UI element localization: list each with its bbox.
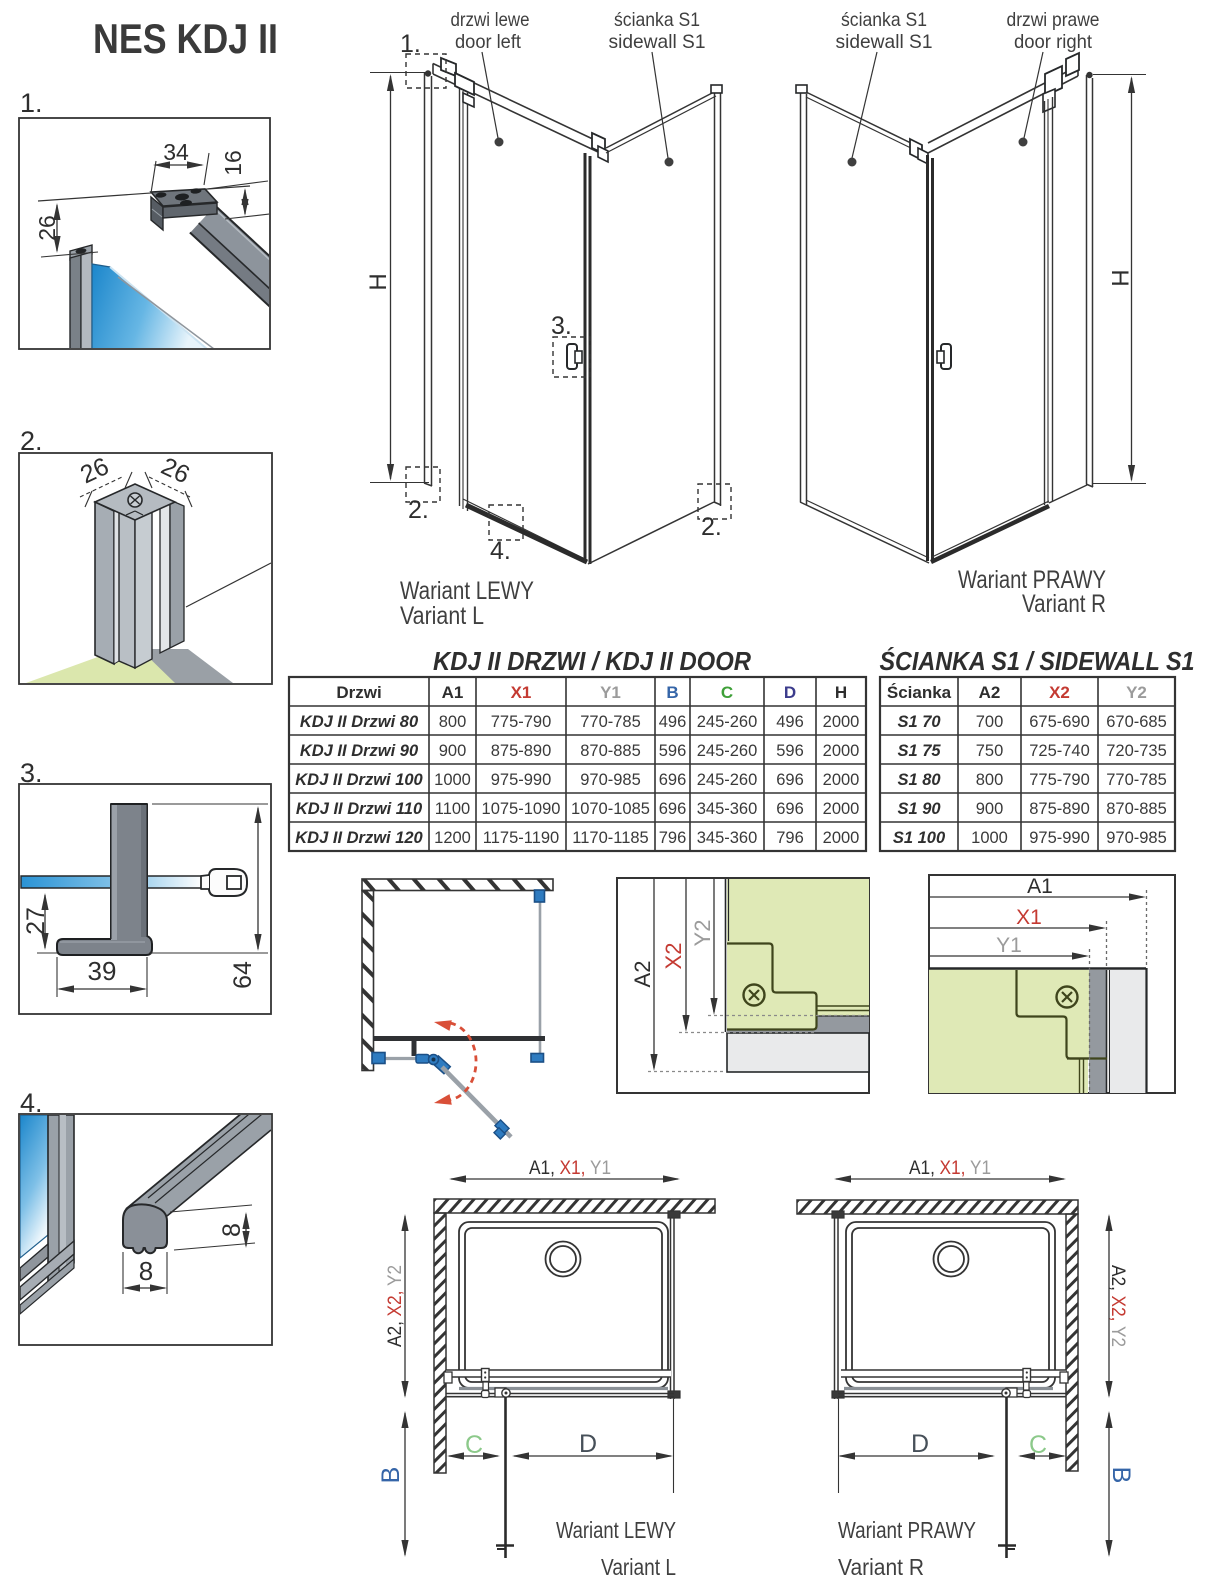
svg-text:870-885: 870-885 — [1106, 800, 1167, 818]
svg-text:Variant L: Variant L — [601, 1554, 676, 1580]
svg-text:X1,: X1, — [940, 1158, 966, 1179]
svg-text:Y2: Y2 — [690, 920, 715, 947]
svg-text:770-785: 770-785 — [580, 713, 641, 731]
svg-text:1200: 1200 — [434, 829, 471, 847]
svg-text:H: H — [835, 683, 847, 702]
svg-text:A1,: A1, — [529, 1158, 555, 1179]
svg-text:27: 27 — [22, 907, 50, 935]
svg-text:X2: X2 — [661, 943, 686, 970]
svg-text:KDJ II Drzwi 120: KDJ II Drzwi 120 — [295, 829, 423, 847]
svg-text:245-260: 245-260 — [697, 742, 758, 760]
svg-text:drzwi prawe: drzwi prawe — [1007, 9, 1100, 31]
svg-text:775-790: 775-790 — [491, 713, 552, 731]
svg-text:door left: door left — [455, 31, 522, 53]
svg-text:975-990: 975-990 — [491, 771, 552, 789]
svg-text:KDJ II Drzwi 110: KDJ II Drzwi 110 — [296, 800, 423, 818]
svg-text:3.: 3. — [551, 312, 572, 340]
svg-text:2000: 2000 — [823, 771, 860, 789]
svg-text:Variant L: Variant L — [400, 602, 484, 630]
svg-text:596: 596 — [776, 742, 804, 760]
svg-text:2.: 2. — [408, 496, 429, 524]
svg-text:NES KDJ II: NES KDJ II — [93, 15, 278, 62]
svg-text:8: 8 — [218, 1223, 246, 1237]
svg-text:X1: X1 — [1016, 906, 1042, 929]
svg-text:Drzwi: Drzwi — [336, 683, 381, 702]
svg-text:1.: 1. — [20, 88, 43, 118]
svg-text:2.: 2. — [20, 426, 43, 456]
svg-text:Y2: Y2 — [1126, 683, 1147, 702]
svg-text:sidewall S1: sidewall S1 — [609, 31, 706, 53]
svg-text:1000: 1000 — [434, 771, 471, 789]
svg-text:696: 696 — [776, 771, 804, 789]
svg-text:Y2: Y2 — [1107, 1326, 1128, 1347]
svg-text:D: D — [784, 683, 796, 702]
svg-text:1075-1090: 1075-1090 — [482, 800, 561, 818]
svg-text:X2,: X2, — [385, 1291, 406, 1317]
svg-text:Variant R: Variant R — [838, 1554, 924, 1580]
svg-text:696: 696 — [659, 800, 687, 818]
svg-text:A1: A1 — [442, 683, 464, 702]
svg-text:800: 800 — [976, 771, 1004, 789]
svg-text:696: 696 — [776, 800, 804, 818]
svg-text:Y2: Y2 — [385, 1265, 406, 1286]
svg-text:KDJ II Drzwi 80: KDJ II Drzwi 80 — [300, 713, 419, 731]
svg-text:1100: 1100 — [435, 800, 470, 818]
svg-text:1170-1185: 1170-1185 — [572, 829, 648, 847]
svg-text:B: B — [666, 683, 678, 702]
svg-text:Y1: Y1 — [970, 1158, 991, 1179]
svg-text:S1 90: S1 90 — [897, 800, 941, 818]
svg-text:A2,: A2, — [1107, 1265, 1128, 1291]
svg-text:Wariant LEWY: Wariant LEWY — [556, 1517, 676, 1543]
svg-text:KDJ II DRZWI / KDJ II DOOR: KDJ II DRZWI / KDJ II DOOR — [433, 646, 751, 676]
svg-text:970-985: 970-985 — [580, 771, 641, 789]
svg-text:39: 39 — [88, 956, 117, 986]
svg-text:34: 34 — [163, 139, 189, 165]
svg-text:64: 64 — [229, 961, 257, 989]
svg-text:A2: A2 — [630, 961, 655, 988]
svg-text:900: 900 — [439, 742, 467, 760]
svg-text:796: 796 — [659, 829, 687, 847]
svg-text:Y1: Y1 — [590, 1158, 611, 1179]
svg-text:675-690: 675-690 — [1029, 713, 1090, 731]
svg-text:B: B — [377, 1467, 405, 1484]
svg-text:Ścianka: Ścianka — [887, 683, 952, 702]
svg-text:4.: 4. — [490, 537, 511, 565]
svg-text:700: 700 — [976, 713, 1004, 731]
svg-text:S1 70: S1 70 — [897, 713, 941, 731]
svg-text:875-890: 875-890 — [1029, 800, 1090, 818]
svg-text:H: H — [365, 273, 392, 290]
svg-text:D: D — [911, 1430, 929, 1458]
svg-text:900: 900 — [976, 800, 1004, 818]
svg-text:X1,: X1, — [560, 1158, 586, 1179]
svg-text:ŚCIANKA S1 / SIDEWALL S1: ŚCIANKA S1 / SIDEWALL S1 — [880, 646, 1195, 676]
svg-text:2000: 2000 — [823, 800, 860, 818]
svg-text:875-890: 875-890 — [491, 742, 552, 760]
svg-text:1070-1085: 1070-1085 — [571, 800, 650, 818]
svg-text:Variant R: Variant R — [1022, 590, 1106, 618]
svg-text:725-740: 725-740 — [1029, 742, 1090, 760]
svg-text:KDJ II Drzwi 100: KDJ II Drzwi 100 — [295, 771, 423, 789]
svg-text:770-785: 770-785 — [1106, 771, 1167, 789]
svg-text:A1: A1 — [1027, 875, 1053, 898]
svg-text:Y1: Y1 — [996, 934, 1022, 957]
svg-text:2.: 2. — [701, 513, 722, 541]
svg-text:ścianka S1: ścianka S1 — [841, 9, 927, 31]
svg-text:2000: 2000 — [823, 713, 860, 731]
svg-text:X1: X1 — [511, 683, 532, 702]
svg-text:750: 750 — [976, 742, 1004, 760]
svg-text:696: 696 — [659, 771, 687, 789]
svg-text:596: 596 — [659, 742, 687, 760]
svg-text:H: H — [1106, 269, 1133, 286]
svg-text:970-985: 970-985 — [1106, 829, 1167, 847]
svg-text:B: B — [1107, 1467, 1135, 1484]
svg-text:KDJ II Drzwi 90: KDJ II Drzwi 90 — [300, 742, 419, 760]
svg-text:door right: door right — [1014, 31, 1093, 53]
svg-text:345-360: 345-360 — [697, 800, 758, 818]
svg-text:ścianka S1: ścianka S1 — [614, 9, 700, 31]
svg-text:C: C — [721, 683, 733, 702]
svg-text:720-735: 720-735 — [1106, 742, 1167, 760]
svg-text:8: 8 — [139, 1256, 153, 1286]
svg-text:A2: A2 — [979, 683, 1001, 702]
svg-text:Wariant LEWY: Wariant LEWY — [400, 577, 534, 605]
svg-text:Y1: Y1 — [600, 683, 621, 702]
svg-text:496: 496 — [659, 713, 687, 731]
svg-text:2000: 2000 — [823, 742, 860, 760]
svg-text:drzwi lewe: drzwi lewe — [451, 9, 530, 31]
svg-text:16: 16 — [220, 150, 246, 176]
svg-text:S1 100: S1 100 — [893, 829, 946, 847]
svg-text:670-685: 670-685 — [1106, 713, 1167, 731]
svg-text:D: D — [579, 1430, 597, 1458]
svg-text:796: 796 — [776, 829, 804, 847]
svg-text:X2: X2 — [1049, 683, 1070, 702]
svg-text:2000: 2000 — [823, 829, 860, 847]
svg-text:S1 80: S1 80 — [897, 771, 941, 789]
svg-text:sidewall S1: sidewall S1 — [836, 31, 933, 53]
svg-text:345-360: 345-360 — [697, 829, 758, 847]
svg-text:C: C — [465, 1431, 483, 1459]
svg-text:S1 75: S1 75 — [897, 742, 941, 760]
svg-text:1175-1190: 1175-1190 — [483, 829, 559, 847]
svg-text:245-260: 245-260 — [697, 713, 758, 731]
svg-text:A1,: A1, — [909, 1158, 935, 1179]
svg-text:775-790: 775-790 — [1029, 771, 1090, 789]
svg-text:X2,: X2, — [1107, 1296, 1128, 1322]
svg-text:496: 496 — [776, 713, 804, 731]
svg-text:245-260: 245-260 — [697, 771, 758, 789]
svg-text:800: 800 — [439, 713, 467, 731]
svg-text:26: 26 — [34, 215, 60, 241]
svg-text:1000: 1000 — [971, 829, 1008, 847]
svg-text:975-990: 975-990 — [1029, 829, 1090, 847]
svg-text:Wariant PRAWY: Wariant PRAWY — [838, 1517, 976, 1543]
svg-text:A2,: A2, — [385, 1321, 406, 1347]
svg-text:870-885: 870-885 — [580, 742, 641, 760]
